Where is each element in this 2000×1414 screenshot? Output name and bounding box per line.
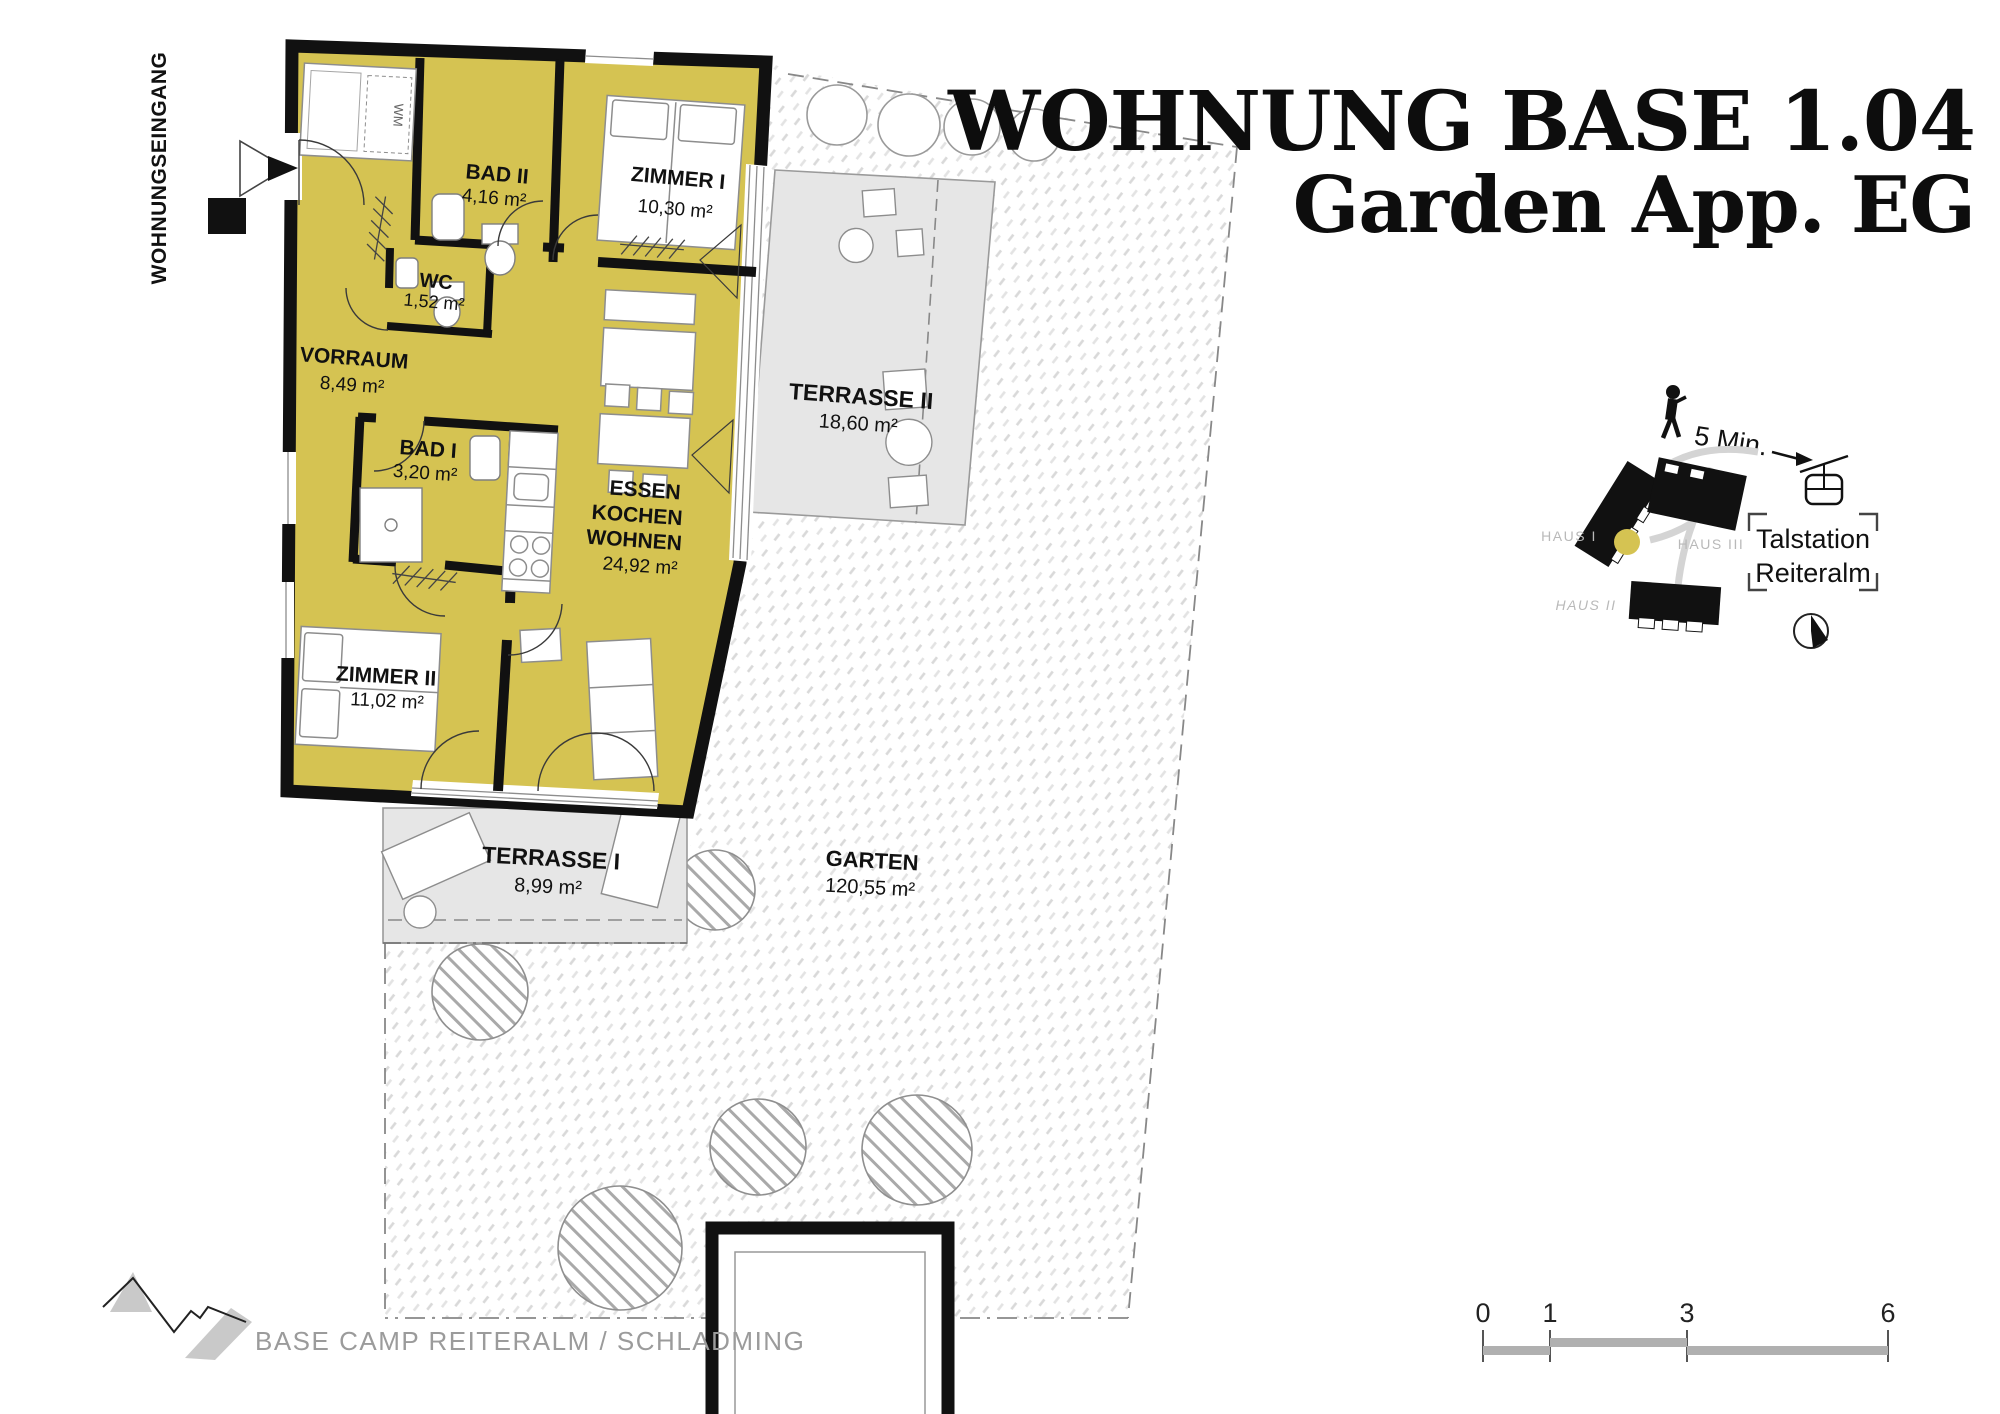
haus1-label: HAUS I [1541,528,1597,544]
scale-tick-3: 3 [1679,1298,1694,1328]
floorplan-page: TERRASSE II 18,60 m² TERRASSE I 8,99 m² … [0,0,2000,1414]
site-inset: 5 Min. [1541,386,1877,649]
floorplan-canvas: TERRASSE II 18,60 m² TERRASSE I 8,99 m² … [0,0,2000,1414]
walk-arrow-icon [1772,452,1813,466]
room-area-vorraum: 8,49 m² [319,373,385,398]
compass-icon [1794,614,1828,648]
scale-tick-1: 1 [1542,1298,1557,1328]
room-label-bad1: BAD I [399,436,458,463]
haus2-label: HAUS II [1555,597,1616,613]
walk-time-label: 5 Min. [1692,420,1769,461]
washer-label: WM [390,103,406,127]
haus3-label: HAUS III [1678,536,1744,552]
room-area-terrasse1: 8,99 m² [514,874,583,900]
scale-tick-0: 0 [1475,1298,1490,1328]
neighbour-structure [712,1228,948,1414]
scale-bar: 0 1 3 6 [1475,1298,1895,1362]
apartment-location-marker [1614,529,1640,555]
logo-peak-small [110,1272,152,1312]
terrace2: TERRASSE II 18,60 m² [748,170,995,525]
station-label-1: Talstation [1756,524,1870,554]
pedestrian-icon [1663,386,1686,439]
page-subtitle: Garden App. EG [1293,160,1975,251]
entrance-label: WOHNUNGSEINGANG [148,52,171,285]
page-title: WOHNUNG BASE 1.04 [947,74,1975,170]
apartment-building: WM [208,46,768,812]
logo-peak-large [185,1308,252,1360]
room-area-zimmer2: 11,02 m² [350,689,425,714]
gondola-icon [1800,456,1848,504]
entrance-marker: WOHNUNGSEINGANG [148,52,298,285]
room-label-garten: GARTEN [825,846,919,876]
entrance-wall-stub [208,198,246,234]
project-label: BASE CAMP REITERALM / SCHLADMING [255,1326,805,1356]
terrace1: TERRASSE I 8,99 m² [382,800,687,943]
room-area-bad1: 3,20 m² [392,461,458,486]
station-label-2: Reiteralm [1755,558,1871,588]
scale-tick-6: 6 [1880,1298,1895,1328]
